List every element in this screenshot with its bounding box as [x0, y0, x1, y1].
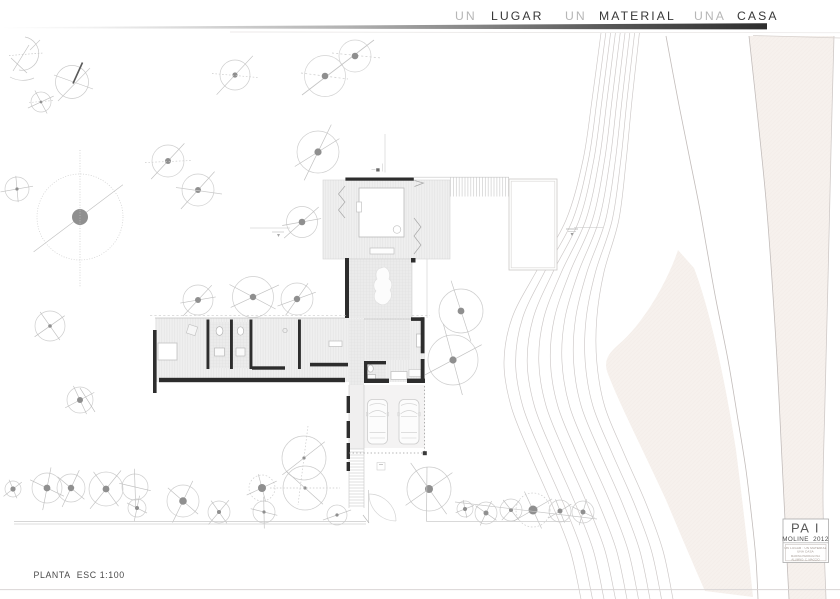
- svg-text:UN: UN: [455, 9, 477, 23]
- svg-text:LUGAR: LUGAR: [491, 9, 544, 23]
- svg-text:ALUMNO: C. MACCIO: ALUMNO: C. MACCIO: [791, 557, 820, 561]
- svg-text:PLANTA ESC 1:100: PLANTA ESC 1:100: [34, 570, 125, 580]
- svg-text:MOLINE 2012: MOLINE 2012: [782, 536, 829, 543]
- svg-text:CASA: CASA: [737, 9, 779, 23]
- svg-text:MATERIAL: MATERIAL: [599, 9, 676, 23]
- svg-text:PA I: PA I: [791, 521, 820, 536]
- svg-text:UNA CASA: UNA CASA: [797, 549, 814, 553]
- svg-text:UNA: UNA: [694, 9, 726, 23]
- svg-text:UN: UN: [565, 9, 587, 23]
